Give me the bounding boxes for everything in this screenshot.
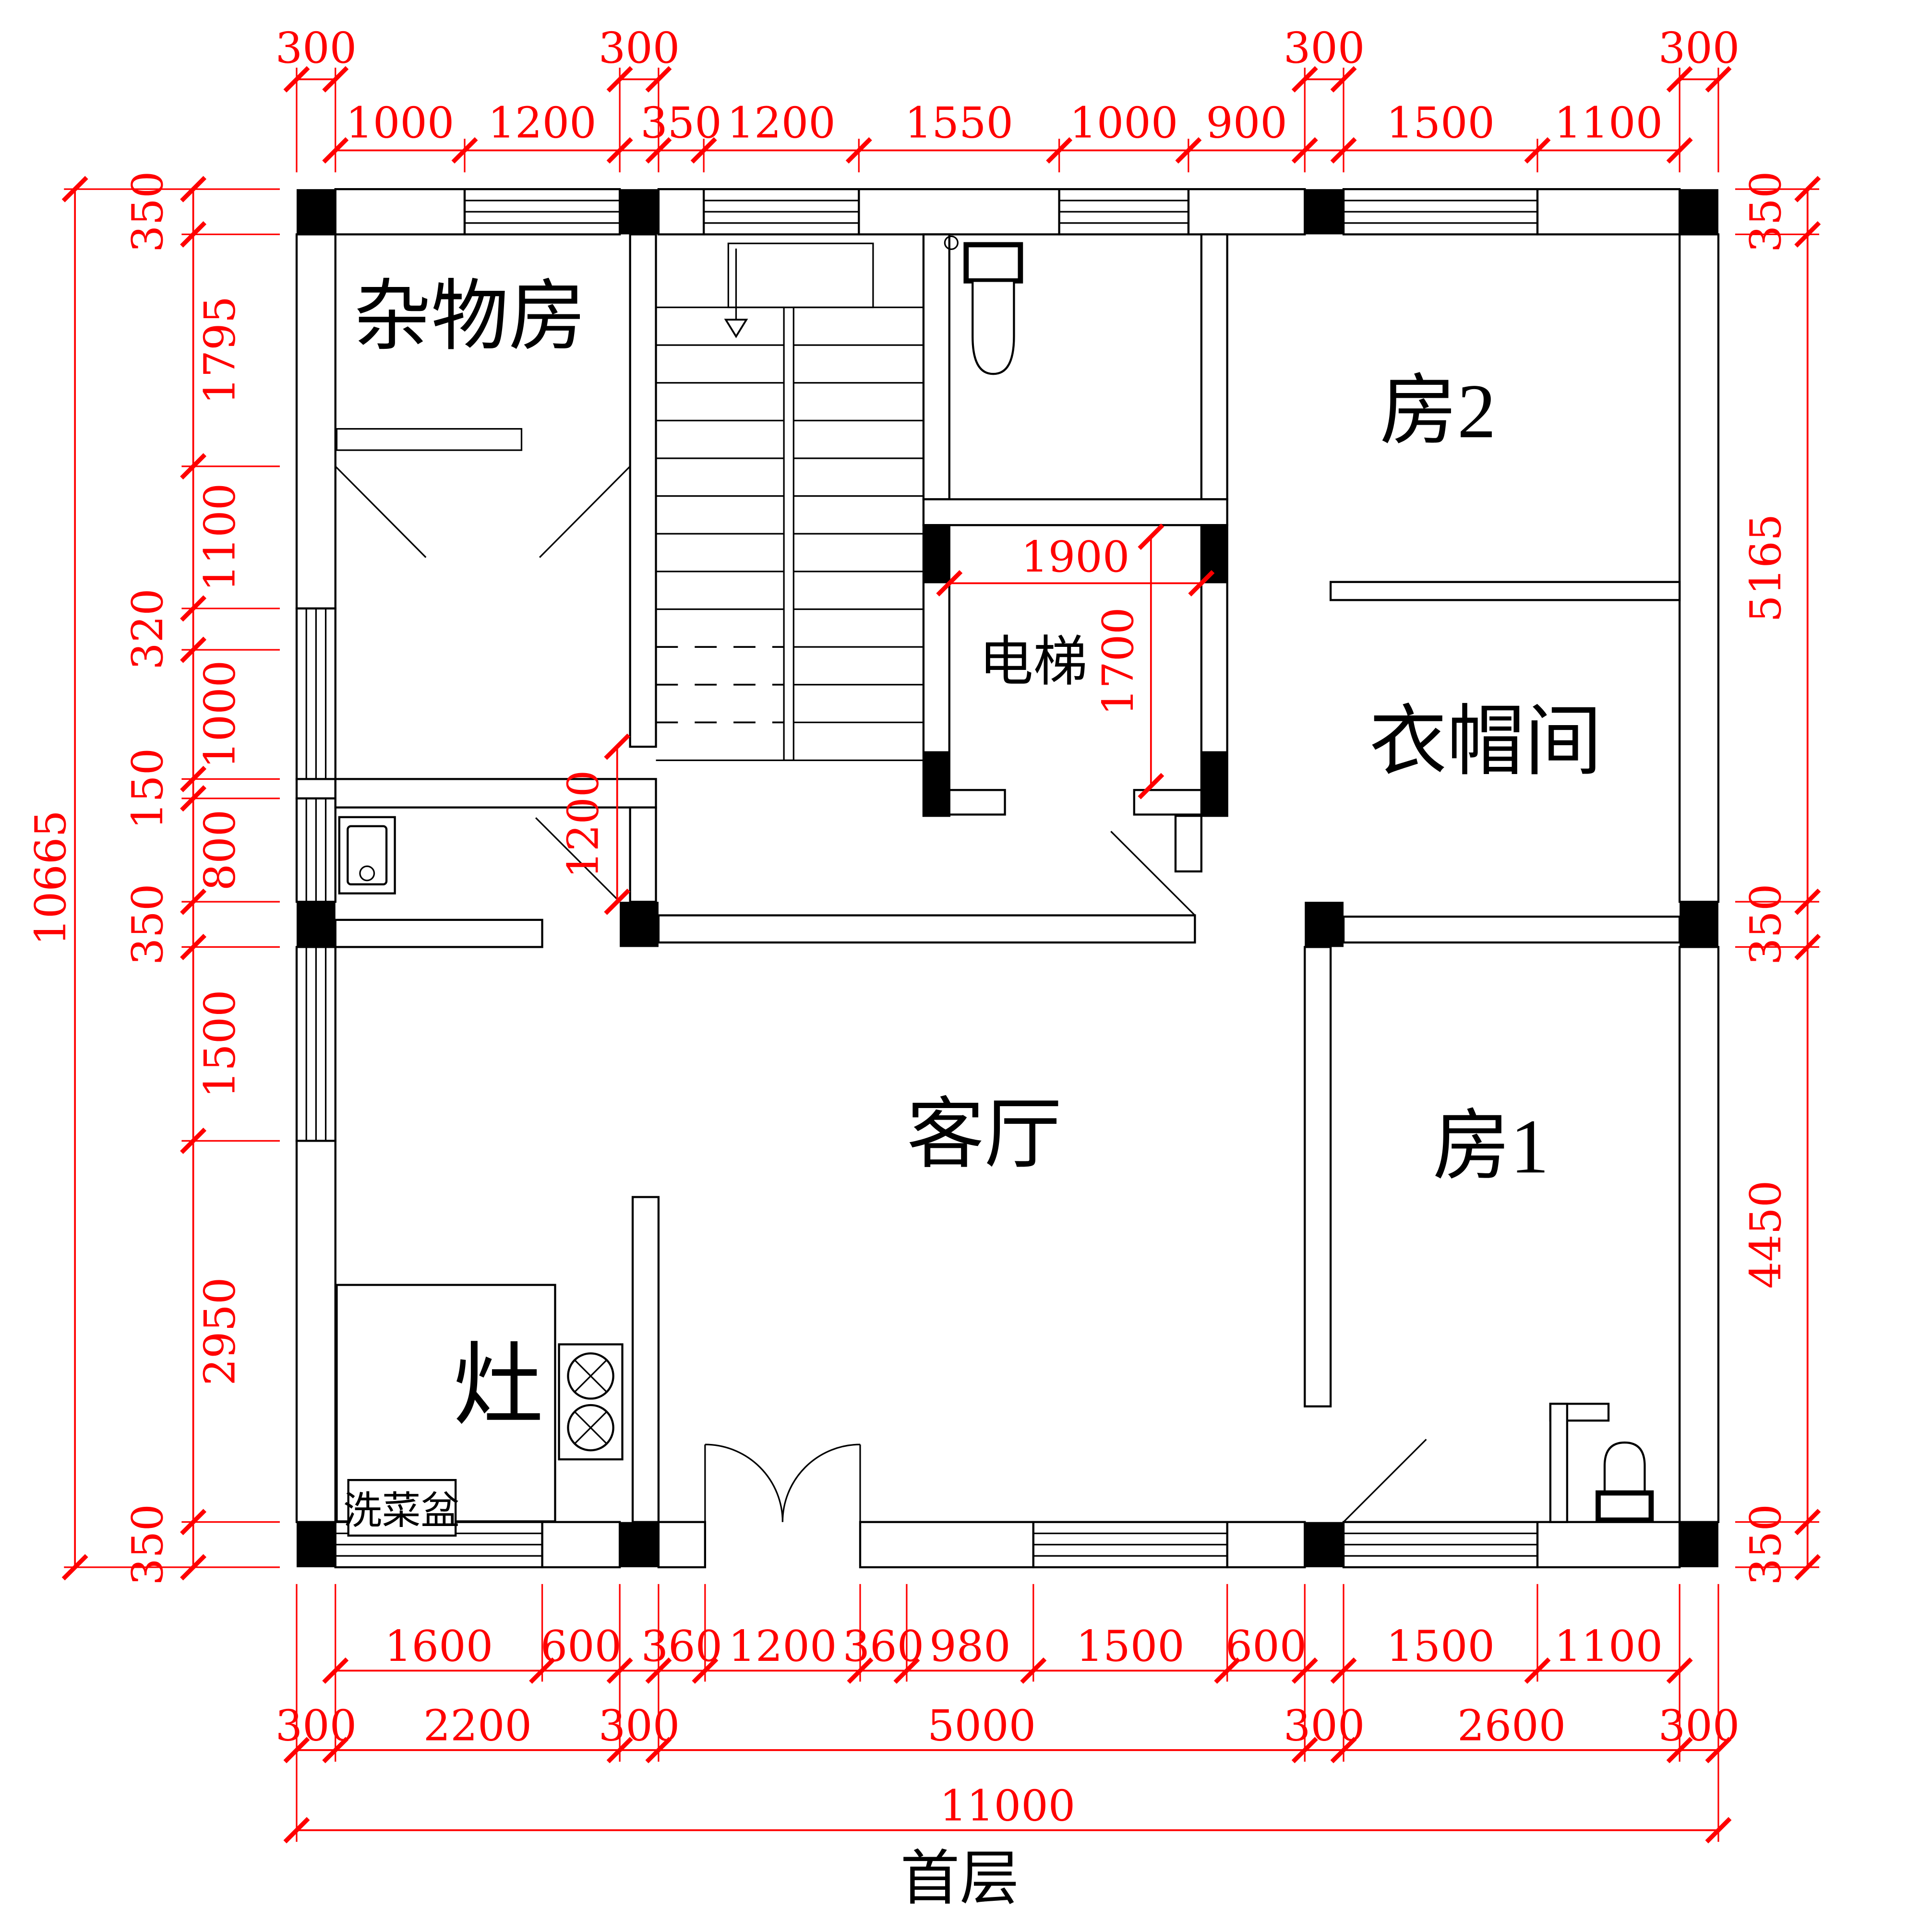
room-label-living: 客厅 bbox=[907, 1092, 1062, 1178]
dim-label: 300 bbox=[599, 1701, 680, 1751]
dim-label: 900 bbox=[1206, 98, 1287, 147]
drawing-title: 首层 bbox=[900, 1846, 1019, 1912]
dim-label: 150 bbox=[123, 748, 172, 830]
dim-label: 300 bbox=[1658, 23, 1740, 72]
window-left-1 bbox=[297, 608, 336, 779]
dim-label: 350 bbox=[123, 884, 172, 966]
dim-label: 2950 bbox=[195, 1277, 245, 1385]
dim-label: 300 bbox=[276, 23, 357, 72]
window-bottom-room1 bbox=[1344, 1522, 1537, 1567]
dim-label: 300 bbox=[1658, 1701, 1740, 1751]
dim-label: 1000 bbox=[1069, 98, 1178, 147]
dim-label: 980 bbox=[929, 1622, 1011, 1671]
dim-label: 1000 bbox=[195, 660, 245, 769]
dim-label: 350 bbox=[123, 1504, 172, 1586]
room-label-cloakroom: 衣帽间 bbox=[1369, 699, 1602, 785]
stair-arrow-head bbox=[726, 320, 746, 336]
dim-label: 300 bbox=[276, 1701, 357, 1751]
dim-label: 2600 bbox=[1457, 1701, 1566, 1751]
room-label-room2: 房2 bbox=[1380, 368, 1496, 454]
storage-shelf bbox=[336, 429, 521, 450]
dim-label: 1200 bbox=[558, 770, 608, 879]
dim-label: 320 bbox=[123, 588, 172, 670]
dim-label: 1100 bbox=[195, 483, 245, 592]
dim-label: 1200 bbox=[728, 1622, 837, 1671]
dim-label: 360 bbox=[641, 1622, 723, 1671]
dim-label: 1550 bbox=[905, 98, 1013, 147]
toilet-top bbox=[945, 236, 1020, 374]
dim-label: 600 bbox=[1225, 1622, 1307, 1671]
dim-label: 1500 bbox=[1386, 1622, 1495, 1671]
floor-plan-page: 300 300 300 300 1000 1200 350 1200 1550 … bbox=[0, 0, 1920, 1932]
room-label-storage: 杂物房 bbox=[353, 274, 586, 360]
burner-icon bbox=[568, 1405, 613, 1450]
dim-label: 10665 bbox=[26, 810, 75, 946]
room-label-sink: 洗菜盆 bbox=[343, 1490, 459, 1533]
room-label-room1: 房1 bbox=[1433, 1103, 1549, 1189]
room-label-elevator: 电梯 bbox=[979, 632, 1088, 692]
dim-label: 350 bbox=[1741, 884, 1790, 966]
window-left-2 bbox=[297, 799, 336, 902]
window-top-room2 bbox=[1344, 189, 1537, 234]
dim-label: 11000 bbox=[940, 1781, 1076, 1831]
dim-label: 300 bbox=[1284, 1701, 1365, 1751]
window-top-stair bbox=[704, 189, 859, 234]
dim-label: 1200 bbox=[727, 98, 836, 147]
dim-label: 350 bbox=[640, 98, 722, 147]
floor-plan-canvas: 300 300 300 300 1000 1200 350 1200 1550 … bbox=[0, 0, 1920, 1932]
dim-label: 5165 bbox=[1741, 514, 1790, 622]
dim-label: 2200 bbox=[423, 1701, 532, 1751]
window-left-3 bbox=[297, 947, 336, 1141]
dim-label: 1000 bbox=[346, 98, 454, 147]
toilet-room1 bbox=[1598, 1443, 1651, 1520]
window-bottom-living bbox=[1033, 1522, 1227, 1567]
dim-label: 600 bbox=[540, 1622, 622, 1671]
storage-door-leaf bbox=[540, 466, 630, 558]
entrance-double-door bbox=[705, 1444, 860, 1522]
dim-label: 1100 bbox=[1554, 98, 1663, 147]
dim-label: 5000 bbox=[927, 1701, 1036, 1751]
window-top-wc bbox=[1059, 189, 1188, 234]
dim-label: 350 bbox=[123, 171, 172, 252]
dim-label: 1100 bbox=[1554, 1622, 1663, 1671]
wc-fixture-left bbox=[339, 817, 395, 894]
dim-label: 1500 bbox=[195, 990, 245, 1098]
room1-door-leaf bbox=[1344, 1439, 1426, 1522]
dim-label: 1900 bbox=[1021, 532, 1129, 582]
window-top-storage bbox=[465, 189, 620, 234]
dim-label: 1600 bbox=[384, 1622, 493, 1671]
dim-label: 800 bbox=[195, 810, 245, 891]
dim-label: 350 bbox=[1741, 1504, 1790, 1586]
dim-label: 1200 bbox=[488, 98, 597, 147]
storage-door-leaf bbox=[336, 466, 426, 558]
dim-label: 360 bbox=[843, 1622, 924, 1671]
dim-label: 350 bbox=[1741, 171, 1790, 252]
dim-label: 1700 bbox=[1093, 607, 1143, 716]
room-label-stove: 灶 bbox=[453, 1336, 543, 1436]
dim-label: 4450 bbox=[1741, 1180, 1790, 1288]
burner-icon bbox=[568, 1353, 613, 1398]
dim-label: 300 bbox=[1284, 23, 1365, 72]
dim-label: 1500 bbox=[1076, 1622, 1185, 1671]
dim-label: 1500 bbox=[1386, 98, 1495, 147]
dim-label: 1795 bbox=[195, 296, 245, 405]
staircase bbox=[656, 243, 924, 760]
dim-label: 300 bbox=[599, 23, 680, 72]
